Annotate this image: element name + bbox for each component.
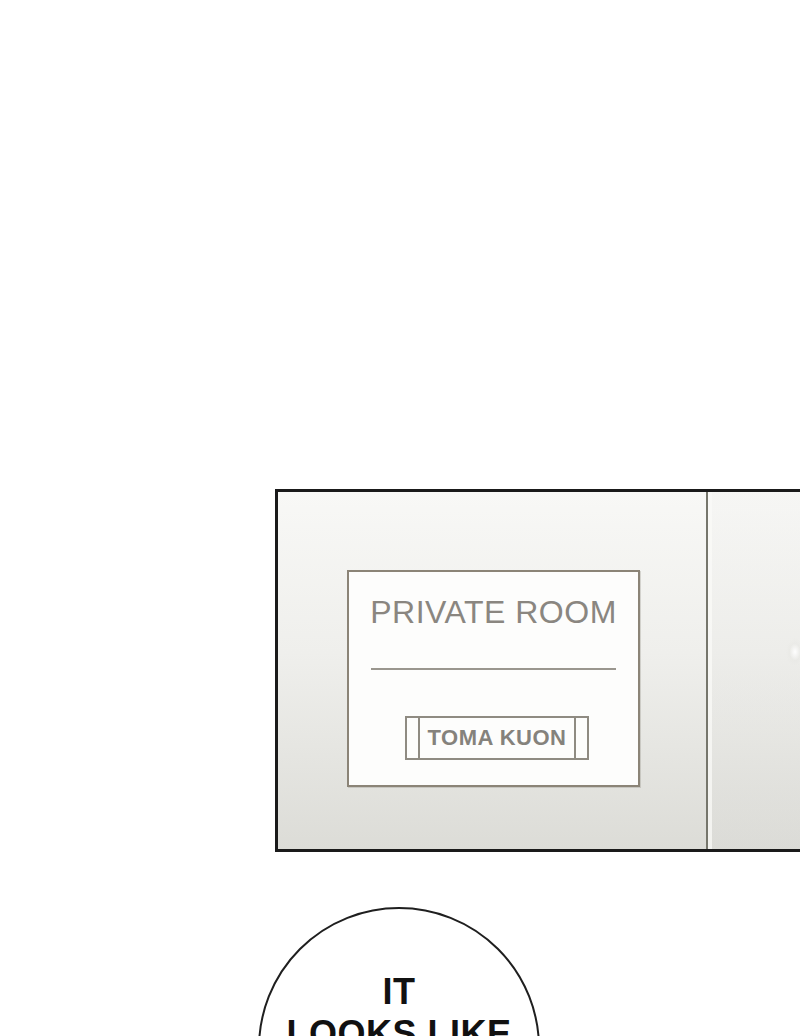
nameplate-text: TOMA KUON — [428, 725, 567, 751]
speech-line-1: IT — [260, 971, 538, 1013]
sign-divider-line — [371, 668, 616, 670]
speech-bubble-text: IT LOOKS LIKE — [260, 971, 538, 1036]
door-panel: PRIVATE ROOM TOMA KUON — [275, 489, 800, 852]
nameplate: TOMA KUON — [405, 716, 589, 760]
comic-page: PRIVATE ROOM TOMA KUON IT LOOKS LIKE — [0, 0, 800, 1036]
door-left: PRIVATE ROOM TOMA KUON — [278, 492, 706, 849]
speech-bubble: IT LOOKS LIKE — [258, 907, 540, 1036]
door-right — [712, 492, 800, 849]
nameplate-right-rail — [574, 718, 576, 758]
door-frame-divider — [706, 492, 708, 849]
private-room-sign: PRIVATE ROOM TOMA KUON — [347, 570, 640, 787]
sign-title: PRIVATE ROOM — [349, 594, 638, 631]
nameplate-left-rail — [418, 718, 420, 758]
speech-line-2: LOOKS LIKE — [260, 1013, 538, 1036]
door-handle-glint — [786, 638, 800, 666]
